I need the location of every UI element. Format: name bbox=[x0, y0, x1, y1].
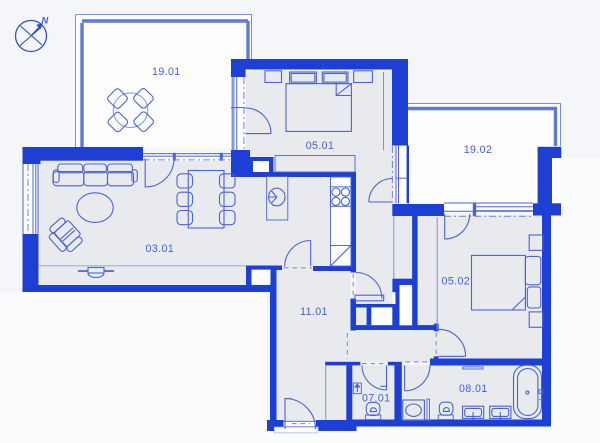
svg-text:08.01: 08.01 bbox=[459, 383, 488, 395]
svg-text:19.01: 19.01 bbox=[152, 66, 181, 78]
svg-text:05.02: 05.02 bbox=[442, 275, 471, 287]
svg-text:07.01: 07.01 bbox=[362, 393, 391, 405]
svg-text:05.01: 05.01 bbox=[306, 140, 335, 152]
svg-text:11.01: 11.01 bbox=[300, 306, 328, 318]
svg-text:N: N bbox=[41, 16, 49, 27]
svg-text:19.02: 19.02 bbox=[464, 144, 493, 156]
svg-text:03.01: 03.01 bbox=[146, 243, 175, 255]
